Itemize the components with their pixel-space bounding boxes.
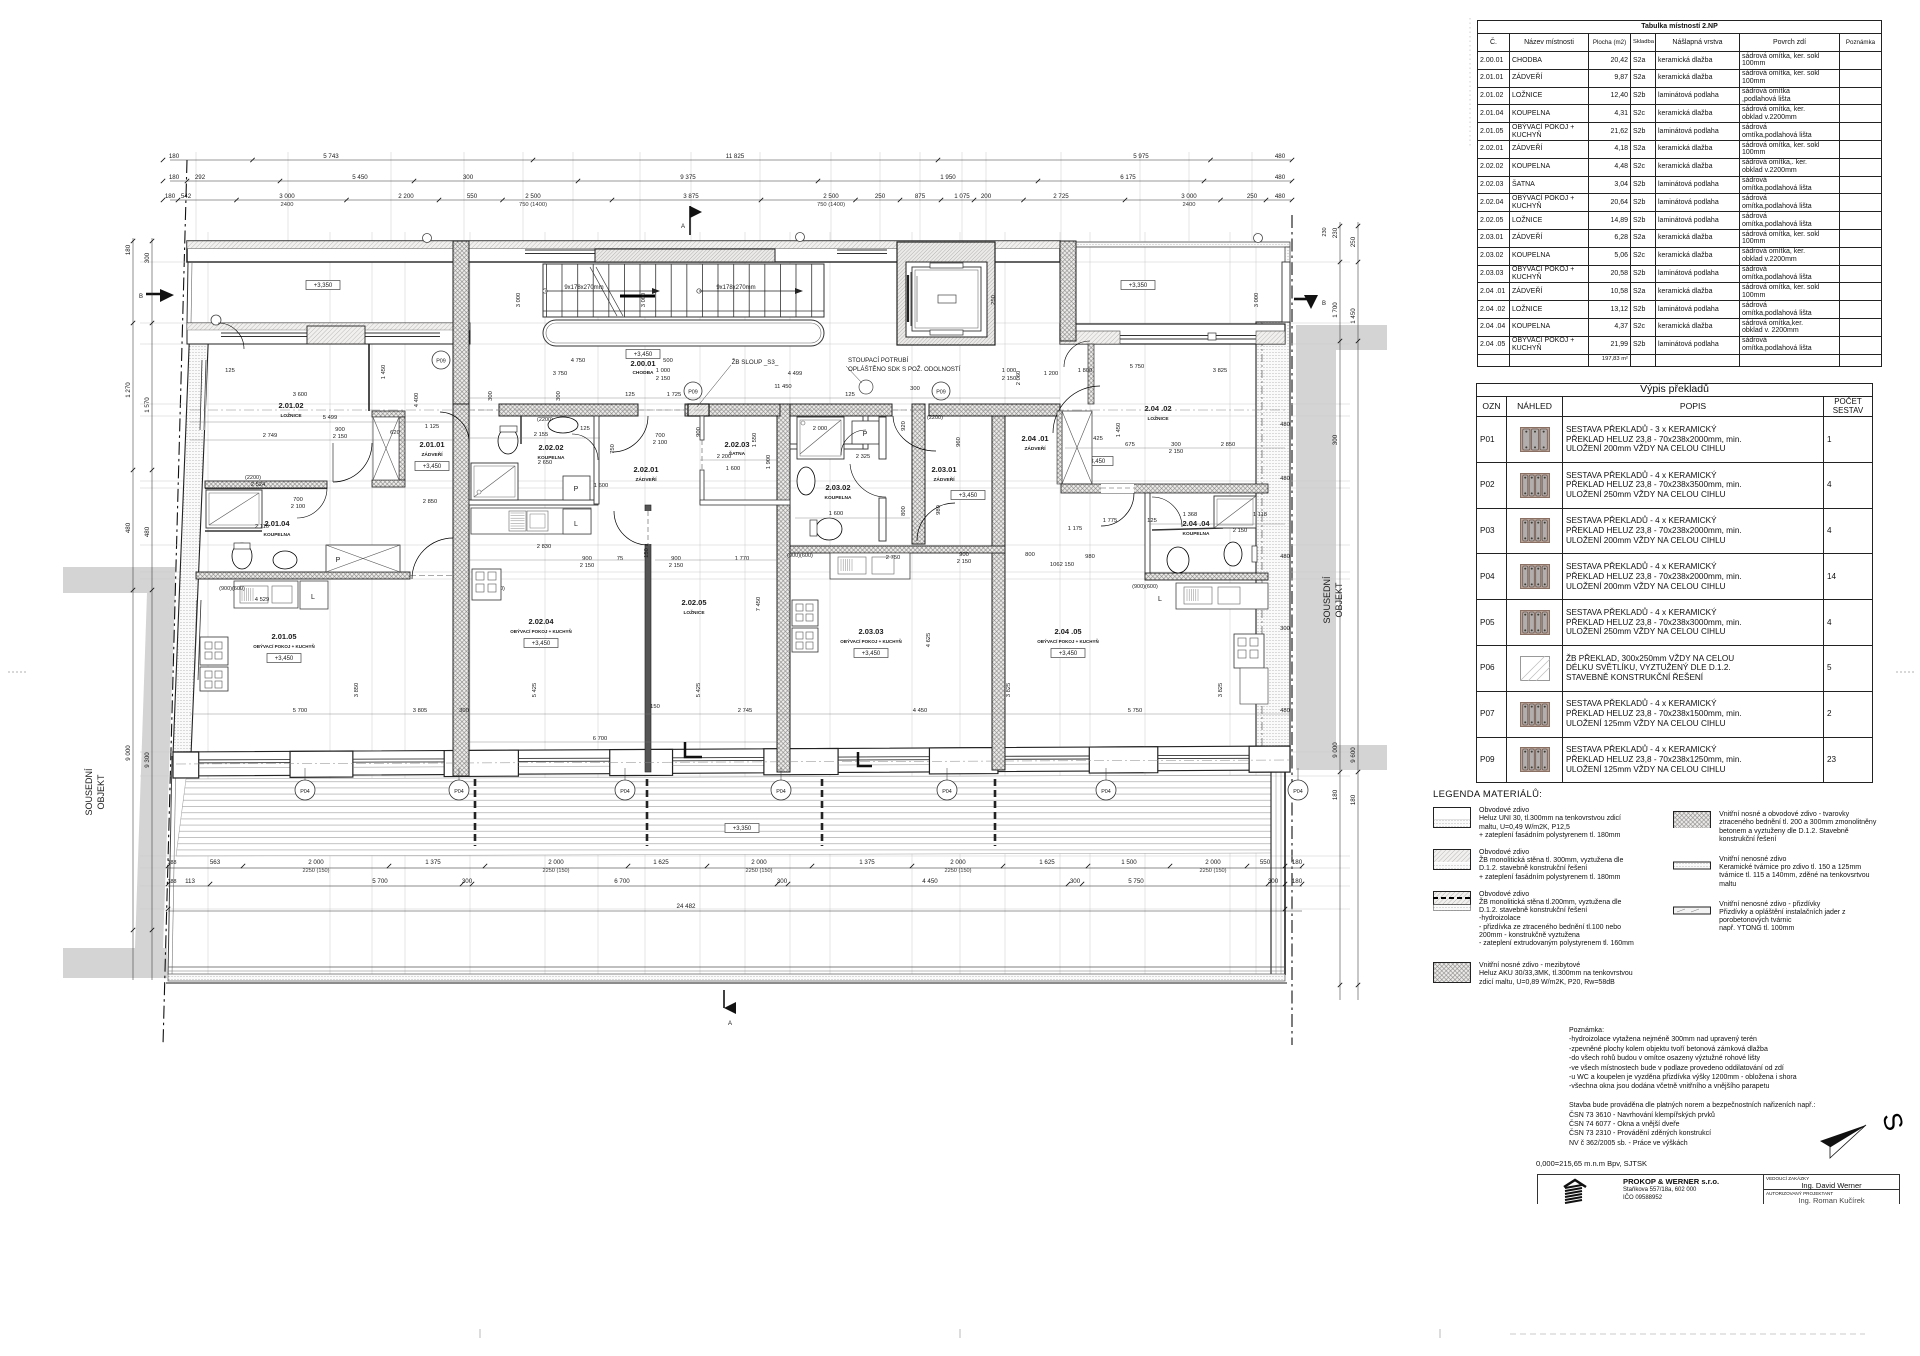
- svg-text:250: 250: [875, 193, 886, 200]
- svg-text:2.02.03: 2.02.03: [724, 440, 749, 449]
- svg-text:3 875: 3 875: [683, 193, 699, 200]
- svg-text:960: 960: [956, 437, 962, 447]
- svg-text:2.00.01: 2.00.01: [630, 359, 655, 368]
- svg-text:OPLÁŠTĚNO SDK S POŽ. ODOLNOSTÍ: OPLÁŠTĚNO SDK S POŽ. ODOLNOSTÍ: [848, 365, 961, 373]
- svg-text:2 830: 2 830: [537, 544, 552, 550]
- svg-text:CHODBA: CHODBA: [632, 370, 654, 376]
- svg-text:2 200: 2 200: [398, 193, 414, 200]
- svg-text:2.01.05: 2.01.05: [271, 632, 296, 641]
- svg-text:300: 300: [1070, 878, 1081, 885]
- svg-text:2 150: 2 150: [333, 434, 348, 440]
- svg-text:(900)(600): (900)(600): [219, 586, 245, 592]
- svg-text:480: 480: [1280, 476, 1290, 482]
- svg-text:1 500: 1 500: [1121, 859, 1137, 866]
- svg-text:1 700: 1 700: [1332, 302, 1339, 318]
- svg-text:300: 300: [144, 252, 151, 263]
- svg-text:2250 (150): 2250 (150): [745, 868, 772, 874]
- svg-text:OBJEKT: OBJEKT: [96, 774, 106, 810]
- svg-text:9 000: 9 000: [125, 745, 132, 761]
- svg-text:300: 300: [463, 174, 474, 181]
- svg-text:900: 900: [335, 427, 345, 433]
- svg-text:5 499: 5 499: [323, 415, 338, 421]
- svg-text:300: 300: [556, 391, 562, 401]
- svg-text:300: 300: [1332, 434, 1339, 445]
- svg-text:4 400: 4 400: [414, 393, 420, 408]
- svg-text:542: 542: [181, 193, 192, 200]
- svg-text:1 570: 1 570: [144, 397, 151, 413]
- svg-text:2 000: 2 000: [950, 859, 966, 866]
- svg-text:180: 180: [1292, 859, 1303, 866]
- svg-text:2 150: 2 150: [656, 376, 671, 382]
- svg-text:2 500: 2 500: [525, 193, 541, 200]
- svg-text:3 600: 3 600: [293, 392, 308, 398]
- svg-text:P: P: [574, 486, 579, 493]
- svg-text:480: 480: [1275, 193, 1286, 200]
- svg-text:1 950: 1 950: [940, 174, 956, 181]
- svg-text:3 750: 3 750: [553, 371, 568, 377]
- svg-text:292: 292: [195, 174, 206, 181]
- svg-text:300: 300: [459, 708, 469, 714]
- svg-text:2 000: 2 000: [751, 859, 767, 866]
- svg-text:+3,450: +3,450: [423, 464, 442, 470]
- svg-text:5 750: 5 750: [1128, 878, 1144, 885]
- svg-text:3 000: 3 000: [641, 293, 647, 308]
- svg-text:2.04 .02: 2.04 .02: [1144, 404, 1171, 413]
- svg-text:(2200): (2200): [245, 475, 261, 481]
- svg-text:2 150: 2 150: [1169, 449, 1184, 455]
- svg-text:480: 480: [1275, 174, 1286, 181]
- svg-text:+3,350: +3,350: [314, 283, 333, 289]
- svg-text:3 000: 3 000: [516, 293, 522, 308]
- svg-text:B: B: [139, 294, 143, 300]
- svg-text:2.03.03: 2.03.03: [858, 627, 883, 636]
- svg-text:113: 113: [185, 878, 195, 885]
- svg-text:1 375: 1 375: [425, 859, 441, 866]
- svg-text:1 075: 1 075: [954, 193, 970, 200]
- svg-text:L: L: [574, 521, 578, 528]
- svg-text:1 600: 1 600: [594, 483, 609, 489]
- svg-text:700: 700: [293, 497, 303, 503]
- svg-text:2.02.05: 2.02.05: [681, 598, 706, 607]
- svg-text:P04: P04: [1101, 789, 1111, 795]
- svg-text:2 200: 2 200: [717, 454, 732, 460]
- svg-text:900: 900: [671, 556, 681, 562]
- svg-text:2.04 .01: 2.04 .01: [1021, 434, 1048, 443]
- svg-text:P09: P09: [936, 390, 946, 396]
- svg-text:2 150: 2 150: [580, 563, 595, 569]
- svg-text:300: 300: [1268, 878, 1279, 885]
- svg-text:900: 900: [959, 552, 969, 558]
- svg-text:A: A: [681, 224, 685, 230]
- svg-text:2.01.01: 2.01.01: [419, 440, 444, 449]
- svg-text:250: 250: [1247, 193, 1258, 200]
- svg-text:A: A: [728, 1021, 732, 1027]
- svg-text:2 000: 2 000: [548, 859, 564, 866]
- svg-text:P: P: [336, 557, 341, 564]
- svg-text:P09: P09: [688, 390, 698, 396]
- svg-text:1 775: 1 775: [1103, 518, 1118, 524]
- svg-text:2.03.02: 2.03.02: [825, 483, 850, 492]
- svg-text:OBÝVACÍ POKOJ + KUCHYŇ: OBÝVACÍ POKOJ + KUCHYŇ: [840, 637, 902, 644]
- svg-text:2 745: 2 745: [738, 708, 753, 714]
- svg-text:5 450: 5 450: [352, 174, 368, 181]
- svg-text:SOUSEDNÍ: SOUSEDNÍ: [1322, 576, 1332, 624]
- svg-text:800: 800: [1025, 552, 1035, 558]
- svg-text:P04: P04: [776, 789, 786, 795]
- svg-text:1 625: 1 625: [1039, 859, 1055, 866]
- svg-text:125: 125: [1147, 518, 1157, 524]
- svg-text:2 000: 2 000: [308, 859, 324, 866]
- svg-text:2250 (150): 2250 (150): [1199, 868, 1226, 874]
- svg-text:2 150: 2 150: [1002, 376, 1017, 382]
- svg-text:480: 480: [1275, 153, 1286, 160]
- svg-text:180: 180: [169, 174, 180, 181]
- svg-text:(2200): (2200): [927, 415, 943, 421]
- svg-text:11 450: 11 450: [774, 384, 791, 390]
- svg-text:1 600: 1 600: [726, 466, 741, 472]
- svg-text:P04: P04: [942, 789, 952, 795]
- svg-text:300: 300: [462, 878, 473, 885]
- svg-text:480: 480: [125, 522, 132, 533]
- svg-text:2.01.02: 2.01.02: [278, 401, 303, 410]
- svg-text:480: 480: [1280, 708, 1290, 714]
- svg-text:2 110: 2 110: [255, 524, 269, 530]
- svg-text:2 749: 2 749: [263, 433, 278, 439]
- svg-text:3 850: 3 850: [354, 683, 360, 698]
- svg-text:KOUPELNA: KOUPELNA: [1183, 531, 1210, 537]
- svg-text:+3,450: +3,450: [634, 352, 653, 358]
- svg-text:1 450: 1 450: [1116, 423, 1122, 438]
- svg-text:4 750: 4 750: [571, 358, 586, 364]
- svg-text:180: 180: [169, 153, 180, 160]
- svg-text:4 450: 4 450: [922, 878, 938, 885]
- svg-text:3 825: 3 825: [1218, 683, 1224, 698]
- svg-text:2 000: 2 000: [813, 426, 828, 432]
- svg-text:L: L: [1158, 596, 1162, 603]
- svg-text:OBJEKT: OBJEKT: [1334, 582, 1344, 618]
- svg-text:SOUSEDNÍ: SOUSEDNÍ: [84, 768, 94, 816]
- svg-text:2 150: 2 150: [957, 559, 972, 565]
- svg-text:2250 (150): 2250 (150): [302, 868, 329, 874]
- svg-text:4 625: 4 625: [926, 633, 932, 648]
- svg-text:3 000: 3 000: [1181, 193, 1197, 200]
- svg-text:2250 (150): 2250 (150): [542, 868, 569, 874]
- svg-text:2 524: 2 524: [251, 482, 266, 488]
- svg-text:2 100: 2 100: [653, 440, 668, 446]
- svg-text:125: 125: [225, 368, 235, 374]
- svg-text:1 725: 1 725: [667, 392, 682, 398]
- svg-text:300: 300: [777, 878, 788, 885]
- svg-text:800: 800: [901, 506, 907, 516]
- svg-text:750 (1400): 750 (1400): [817, 202, 845, 208]
- svg-text:920: 920: [901, 421, 907, 431]
- svg-text:2 650: 2 650: [538, 460, 553, 466]
- svg-text:230: 230: [1332, 227, 1339, 238]
- svg-text:1 625: 1 625: [653, 859, 669, 866]
- svg-text:9 000: 9 000: [1332, 742, 1339, 758]
- svg-text:300: 300: [1171, 442, 1181, 448]
- svg-text:188: 188: [168, 879, 177, 885]
- svg-text:+3,450: +3,450: [959, 493, 978, 499]
- svg-text:9 375: 9 375: [680, 174, 696, 181]
- svg-text:300: 300: [488, 391, 494, 401]
- svg-text:KOUPELNA: KOUPELNA: [264, 532, 291, 538]
- svg-text:KOUPELNA: KOUPELNA: [825, 495, 852, 501]
- svg-text:+3,350: +3,350: [733, 826, 752, 832]
- svg-text:ŽB SLOUP _S3_: ŽB SLOUP _S3_: [732, 358, 779, 366]
- svg-text:150: 150: [644, 548, 650, 558]
- svg-text:300: 300: [910, 386, 920, 392]
- svg-text:900: 900: [582, 556, 592, 562]
- svg-text:180: 180: [1332, 789, 1339, 800]
- svg-text:480: 480: [1280, 554, 1290, 560]
- svg-text:75: 75: [617, 556, 623, 562]
- svg-text:+3,450: +3,450: [1059, 651, 1078, 657]
- svg-text:2 850: 2 850: [1221, 442, 1236, 448]
- svg-text:750: 750: [610, 444, 616, 454]
- svg-text:2.03.01: 2.03.01: [931, 465, 956, 474]
- svg-text:P09: P09: [436, 359, 446, 365]
- svg-text:2 000: 2 000: [1205, 859, 1221, 866]
- svg-text:3 825: 3 825: [1006, 683, 1012, 698]
- svg-text:980: 980: [936, 505, 942, 515]
- svg-text:1 770: 1 770: [735, 556, 750, 562]
- svg-text:875: 875: [915, 193, 926, 200]
- svg-text:1 450: 1 450: [381, 365, 387, 380]
- svg-text:2400: 2400: [281, 202, 294, 208]
- svg-text:180: 180: [1350, 794, 1357, 805]
- svg-text:700: 700: [655, 433, 665, 439]
- svg-text:125: 125: [625, 392, 635, 398]
- svg-text:P04: P04: [1293, 789, 1303, 795]
- svg-text:P04: P04: [454, 789, 464, 795]
- svg-text:250: 250: [1350, 236, 1357, 247]
- svg-text:2.02.01: 2.02.01: [633, 465, 658, 474]
- svg-text:1 200: 1 200: [1044, 371, 1059, 377]
- svg-text:1 800: 1 800: [1078, 368, 1093, 374]
- svg-text:125: 125: [845, 392, 855, 398]
- svg-text:620: 620: [390, 430, 400, 436]
- svg-text:4 499: 4 499: [788, 371, 803, 377]
- svg-text:S: S: [1876, 1109, 1909, 1134]
- svg-text:200: 200: [981, 193, 992, 200]
- svg-text:2 150: 2 150: [669, 563, 684, 569]
- svg-text:425: 425: [1093, 436, 1103, 442]
- svg-text:2 325: 2 325: [856, 454, 871, 460]
- svg-text:+3,350: +3,350: [1129, 283, 1148, 289]
- svg-text:5 700: 5 700: [372, 878, 388, 885]
- svg-text:OBÝVACÍ POKOJ + KUCHYŇ: OBÝVACÍ POKOJ + KUCHYŇ: [253, 642, 315, 649]
- svg-text:5 750: 5 750: [1130, 364, 1145, 370]
- svg-text:9x178x270mm: 9x178x270mm: [716, 285, 755, 291]
- svg-text:11 825: 11 825: [726, 153, 745, 160]
- svg-text:9x178x270mm: 9x178x270mm: [564, 285, 603, 291]
- svg-text:+3,450: +3,450: [862, 651, 881, 657]
- svg-text:2 060: 2 060: [1016, 371, 1022, 386]
- svg-text:2 725: 2 725: [1053, 193, 1069, 200]
- svg-text:2.02.04: 2.02.04: [528, 617, 554, 626]
- svg-text:150: 150: [650, 704, 660, 710]
- svg-text:4 529: 4 529: [255, 597, 270, 603]
- svg-text:2250 (150): 2250 (150): [944, 868, 971, 874]
- svg-text:6 700: 6 700: [593, 736, 608, 742]
- svg-text:125: 125: [580, 426, 590, 432]
- svg-text:1 368: 1 368: [1183, 512, 1198, 518]
- svg-text:230: 230: [1322, 227, 1328, 236]
- svg-text:2 850: 2 850: [423, 499, 438, 505]
- svg-text:2 155: 2 155: [534, 432, 549, 438]
- svg-text:L: L: [311, 594, 315, 601]
- svg-text:P04: P04: [300, 789, 310, 795]
- svg-text:2 500: 2 500: [823, 193, 839, 200]
- svg-text:2 100: 2 100: [291, 504, 306, 510]
- svg-text:900: 900: [696, 427, 702, 437]
- svg-text:9 600: 9 600: [1350, 747, 1357, 763]
- svg-text:24 482: 24 482: [677, 903, 696, 910]
- svg-text:1 118: 1 118: [1253, 512, 1267, 518]
- svg-text:563: 563: [210, 859, 221, 866]
- svg-text:1062 150: 1062 150: [1050, 562, 1074, 568]
- svg-text:980: 980: [1085, 554, 1095, 560]
- svg-text:P04: P04: [620, 789, 630, 795]
- svg-text:5 425: 5 425: [696, 683, 702, 698]
- svg-text:(900)(600): (900)(600): [787, 553, 813, 559]
- svg-text:STOUPACÍ POTRUBÍ: STOUPACÍ POTRUBÍ: [848, 357, 909, 364]
- svg-text:180: 180: [165, 193, 176, 200]
- svg-text:9 300: 9 300: [144, 752, 151, 768]
- svg-text:1 000: 1 000: [656, 368, 671, 374]
- svg-text:5 743: 5 743: [323, 153, 339, 160]
- svg-text:2.04 .05: 2.04 .05: [1054, 627, 1081, 636]
- svg-text:2 150: 2 150: [1233, 528, 1248, 534]
- svg-text:480: 480: [144, 526, 151, 537]
- svg-text:2.04 .04: 2.04 .04: [1182, 519, 1210, 528]
- svg-text:1 450: 1 450: [1350, 308, 1357, 324]
- svg-text:1 375: 1 375: [859, 859, 875, 866]
- svg-text:5 425: 5 425: [532, 683, 538, 698]
- svg-text:+3,450: +3,450: [275, 656, 294, 662]
- svg-text:1 175: 1 175: [1068, 526, 1083, 532]
- svg-text:(900)(600): (900)(600): [1132, 584, 1158, 590]
- svg-text:1 600: 1 600: [829, 511, 844, 517]
- svg-text:1 000: 1 000: [1002, 368, 1017, 374]
- svg-text:180: 180: [125, 244, 132, 255]
- svg-text:4 450: 4 450: [913, 708, 928, 714]
- svg-text:250: 250: [991, 295, 997, 305]
- svg-text:300: 300: [1280, 626, 1290, 632]
- svg-text:1 270: 1 270: [125, 382, 132, 398]
- svg-text:1 900: 1 900: [766, 455, 772, 470]
- svg-text:5 700: 5 700: [293, 708, 308, 714]
- svg-text:480: 480: [1280, 422, 1290, 428]
- svg-text:750 (1400): 750 (1400): [519, 202, 547, 208]
- svg-text:7 450: 7 450: [756, 597, 762, 612]
- svg-text:6 700: 6 700: [614, 878, 630, 885]
- svg-text:675: 675: [1125, 442, 1135, 448]
- svg-text:2400: 2400: [1183, 202, 1196, 208]
- svg-text:+3,450: +3,450: [532, 641, 551, 647]
- svg-text:B: B: [1322, 301, 1326, 307]
- svg-text:OBÝVACÍ POKOJ + KUCHYŇ: OBÝVACÍ POKOJ + KUCHYŇ: [510, 627, 572, 634]
- svg-text:6 175: 6 175: [1120, 174, 1136, 181]
- svg-text:180: 180: [1292, 878, 1303, 885]
- svg-text:3 000: 3 000: [279, 193, 295, 200]
- svg-text:500: 500: [663, 358, 673, 364]
- svg-text:P: P: [863, 431, 868, 438]
- svg-text:5 975: 5 975: [1133, 153, 1149, 160]
- svg-text:3 000: 3 000: [1254, 293, 1260, 308]
- svg-text:1 550: 1 550: [752, 433, 758, 448]
- svg-text:2.02.02: 2.02.02: [538, 443, 563, 452]
- svg-text:2 750: 2 750: [886, 555, 901, 561]
- svg-text:1 125: 1 125: [425, 424, 440, 430]
- svg-text:OBÝVACÍ POKOJ + KUCHYŇ: OBÝVACÍ POKOJ + KUCHYŇ: [1037, 637, 1099, 644]
- svg-text:550: 550: [467, 193, 478, 200]
- svg-text:550: 550: [1260, 859, 1271, 866]
- svg-text:5 750: 5 750: [1128, 708, 1143, 714]
- svg-text:3 805: 3 805: [413, 708, 428, 714]
- svg-text:3 825: 3 825: [1213, 368, 1228, 374]
